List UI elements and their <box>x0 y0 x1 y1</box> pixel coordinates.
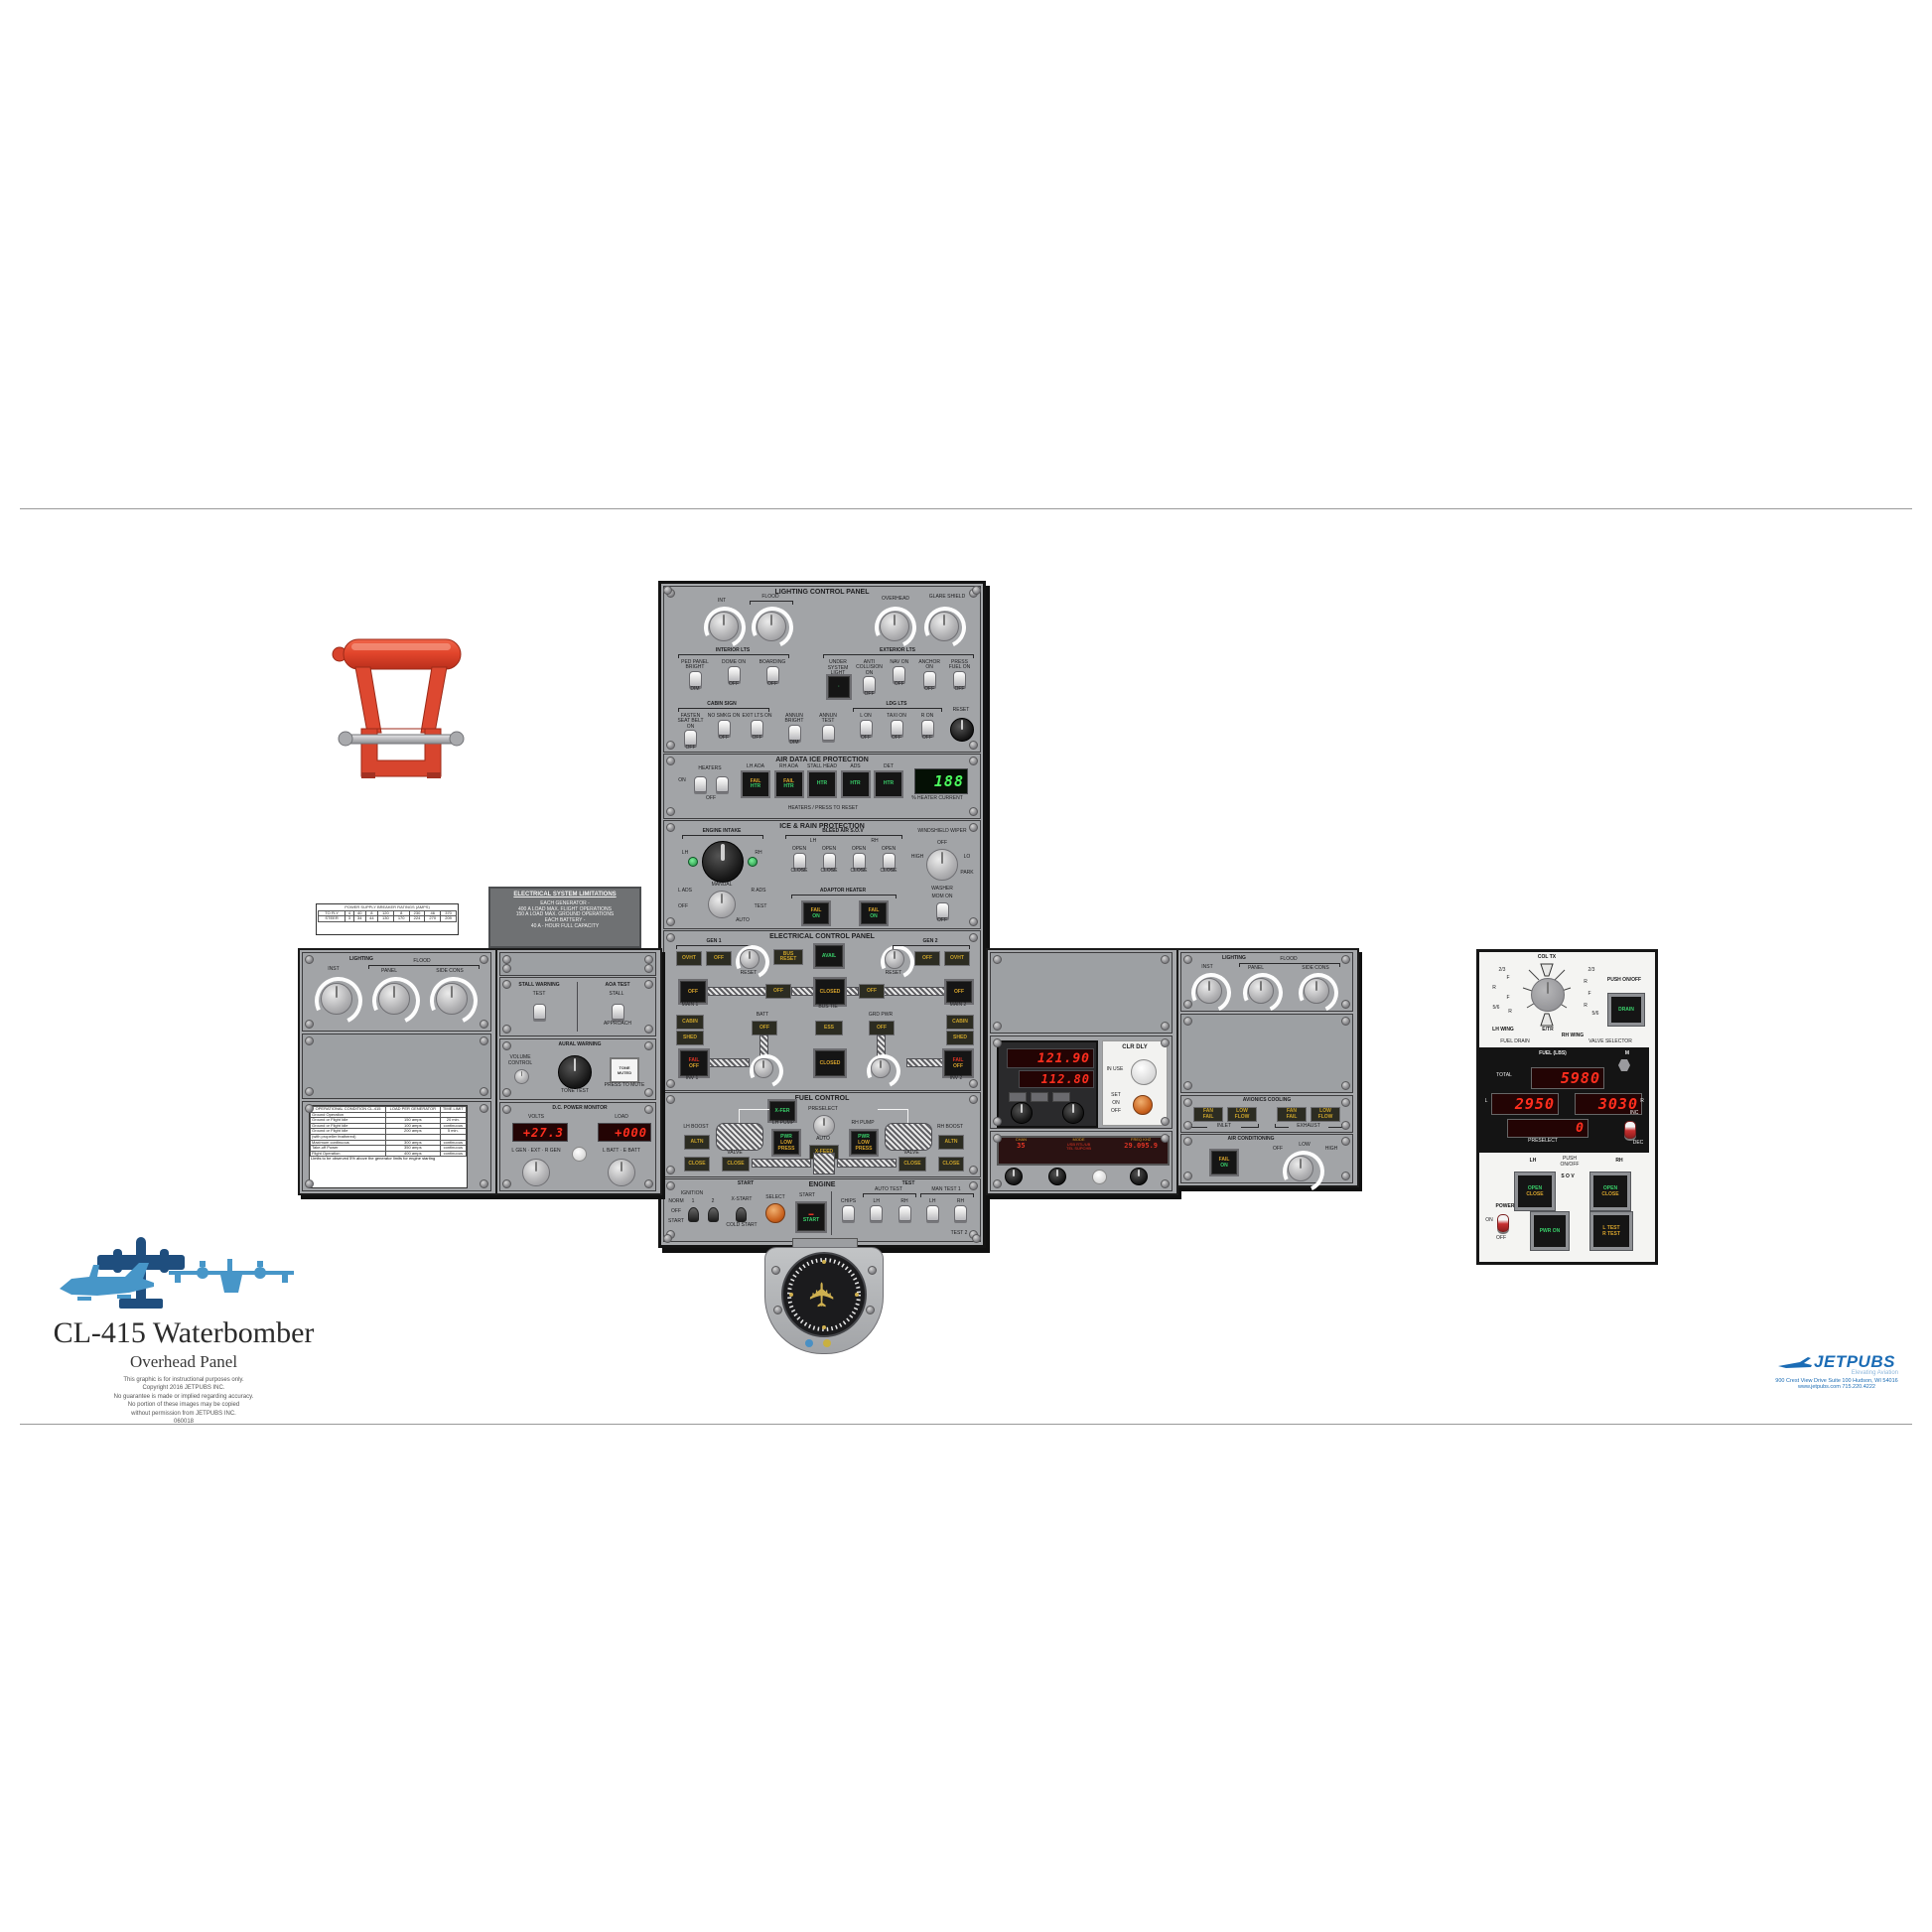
annunciator-face[interactable]: FAIL HTR <box>774 770 804 798</box>
m-label: M <box>1620 1051 1634 1057</box>
engine-test-switch[interactable]: LH <box>919 1199 946 1221</box>
toggle-lever[interactable] <box>923 671 936 687</box>
breaker-table: TO FLY4 408 1208 23046 370 STEER3 3444 1… <box>318 910 457 922</box>
dc-left-selector-labels: L GEN · EXT · R GEN <box>506 1149 566 1155</box>
air-data-ice-protection-panel: AIR DATA ICE PROTECTION HEATERS ON OFF L… <box>663 754 981 819</box>
clr-dly-button[interactable] <box>1131 1059 1157 1085</box>
sel-pos: R <box>1581 1004 1590 1010</box>
sov-letters: S O V <box>1561 1174 1575 1180</box>
rh-altn-annunciator[interactable]: ALTN <box>938 1135 964 1150</box>
grd-pwr-label: GRD PWR <box>863 1013 898 1019</box>
heater-annunciator[interactable]: LH AOA FAIL HTR <box>740 764 771 798</box>
start-button-label: START <box>791 1193 823 1199</box>
cabin-sign-switch[interactable]: NO SMKG ON OFF <box>708 714 741 752</box>
screw <box>1161 1117 1170 1126</box>
screw <box>972 1234 981 1243</box>
sel-pos: 2/3 <box>1583 968 1600 974</box>
left-panel-label: PANEL <box>372 969 406 975</box>
cabin-annunciator[interactable]: CABIN <box>676 1015 704 1030</box>
lh-boost-label: LH BOOST <box>680 1125 712 1131</box>
hf-knob-3[interactable] <box>1130 1168 1148 1185</box>
start-button[interactable]: ▬ START <box>795 1201 827 1233</box>
ldg-light-switch[interactable]: L ON OFF <box>851 714 881 742</box>
screw <box>1341 1172 1350 1180</box>
sel-pos: 5/6 <box>1587 1012 1604 1018</box>
toggle-lever[interactable] <box>926 1205 939 1221</box>
flood-label: FLOOD <box>752 595 789 601</box>
on-label: ON <box>1107 1101 1125 1107</box>
avionics-cooling-title: AVIONICS COOLING <box>1217 1098 1316 1104</box>
sel-pos: F <box>1503 996 1513 1002</box>
fuel-quantity-section: FUEL (LBS) M TOTAL 5980 L 2950 3030 R 0 … <box>1479 1047 1649 1153</box>
gen1-off-annunciator[interactable]: OFF <box>706 951 732 966</box>
rh-label: RH <box>752 851 765 857</box>
glareshield-light-knob[interactable] <box>929 612 959 641</box>
screw <box>480 955 488 964</box>
screw <box>305 1020 314 1029</box>
total-label: TOTAL <box>1489 1073 1519 1079</box>
jetpubs-contact: www.jetpubs.com 715.220.4222 <box>1757 1384 1916 1390</box>
toggle-lever[interactable] <box>766 666 779 682</box>
aircon-annunciator[interactable]: FAIL ON <box>1209 1149 1239 1176</box>
gen1-reset-label: RESET <box>734 971 763 977</box>
screw <box>1183 1017 1192 1026</box>
gen1-ovht-annunciator[interactable]: OVHT <box>676 951 702 966</box>
screw <box>1183 1137 1192 1146</box>
toggle-lever[interactable] <box>883 853 896 869</box>
screw <box>969 1166 978 1174</box>
standby-compass-housing: ✈ <box>764 1247 884 1354</box>
volts-label: VOLTS <box>518 1115 554 1121</box>
aural-warning-panel: AURAL WARNING VOLUME CONTROL TONE TEST T… <box>499 1038 656 1100</box>
volts-display: +27.3 <box>512 1123 568 1142</box>
fuel-drain-selector-section: COL TX 2/3 F R F 5/6 R 2/3 R F R 5/6 E <box>1479 952 1649 1047</box>
toggle-lever[interactable] <box>863 676 876 692</box>
screw <box>969 823 978 832</box>
ads-mode-selector[interactable] <box>708 891 736 918</box>
toggle-lever[interactable] <box>870 1205 883 1221</box>
fuel-control-panel: FUEL CONTROL X-FER LH PUMP PWR LOW PRESS… <box>663 1092 981 1177</box>
left-panel-knob[interactable] <box>378 983 410 1015</box>
screw <box>969 933 978 942</box>
stall-test-label: TEST <box>522 992 556 998</box>
heater-switch-2[interactable] <box>716 776 729 792</box>
toggle-lever[interactable] <box>788 725 801 741</box>
preselect-caption: PRESELECT <box>1513 1139 1573 1145</box>
screw <box>502 964 511 973</box>
screw <box>993 1022 1002 1031</box>
stall-warning-panel: STALL WARNING TEST AOA TEST STALL APPROA… <box>499 977 656 1036</box>
heater-current-label: % HEATER CURRENT <box>906 796 968 802</box>
screw <box>993 1179 1002 1188</box>
screw <box>305 1104 314 1113</box>
trim-line-top <box>20 508 1912 509</box>
avionics-cooling-panel: AVIONICS COOLING FANFAIL LOWFLOW FANFAIL… <box>1180 1095 1353 1133</box>
rh-pump-annunciator[interactable]: PWR LOW PRESS <box>849 1129 879 1157</box>
inlet-label: INLET <box>1207 1124 1241 1130</box>
inv1-label: INV 1 <box>676 1076 708 1082</box>
screw <box>993 1038 1002 1047</box>
clr-dly-plate: CLR DLY IN USE SET ON OFF <box>1102 1040 1168 1126</box>
gen1-reset-knob[interactable] <box>740 949 759 969</box>
screw <box>305 1036 314 1045</box>
main1-label: MAIN 1 <box>670 1003 710 1009</box>
gen2-off-annunciator[interactable]: OFF <box>914 951 940 966</box>
r-label: R <box>1637 1099 1647 1105</box>
int-light-knob[interactable] <box>709 612 739 641</box>
screw <box>1183 1098 1192 1107</box>
power-switch[interactable] <box>1497 1214 1509 1232</box>
interior-light-switch[interactable]: BOARDING OFF <box>754 660 791 693</box>
screw <box>666 933 675 942</box>
right-sidecons-label: SIDE CONS <box>1297 966 1334 972</box>
dc-power-monitor-panel: D.C. POWER MONITOR VOLTS +27.3 LOAD +000… <box>499 1102 656 1191</box>
mode-rads-label: R ADS <box>746 889 771 895</box>
left-blank-panel <box>302 1034 491 1099</box>
screw <box>666 1095 675 1104</box>
screw <box>666 823 675 832</box>
toggle-lever[interactable] <box>684 730 697 746</box>
screw <box>969 1079 978 1088</box>
engine-intake-bracket <box>682 835 763 839</box>
heater-annunciator[interactable]: ADS HTR <box>840 764 872 798</box>
bleed-sov-switch[interactable]: OPEN CLOSE <box>815 847 843 875</box>
aircon-knob[interactable] <box>1288 1156 1313 1181</box>
rh-valve-annunciator[interactable]: CLOSE <box>898 1157 926 1172</box>
engine-test-switch[interactable]: RH <box>892 1199 918 1221</box>
toggle-lever[interactable] <box>842 1205 855 1221</box>
screw <box>969 1181 978 1190</box>
annunciator-face[interactable]: HTR <box>874 770 903 798</box>
engine-test-switch[interactable]: RH <box>947 1199 974 1221</box>
rh-sov-button[interactable]: OPEN CLOSE <box>1590 1173 1630 1210</box>
rh-close-annunciator[interactable]: CLOSE <box>938 1157 964 1172</box>
poster-title: CL-415 Waterbomber <box>40 1316 328 1350</box>
exterior-lts-bracket <box>823 654 974 658</box>
lh-altn-annunciator[interactable]: ALTN <box>684 1135 710 1150</box>
dec-label: DEC <box>1628 1141 1648 1147</box>
lh-valve-annunciator[interactable]: CLOSE <box>722 1157 750 1172</box>
dc-test-button[interactable] <box>572 1147 587 1162</box>
tone-test-label: TONE TEST <box>556 1089 594 1095</box>
shed-annunciator-right[interactable]: SHED <box>946 1031 974 1045</box>
heater-annunciator[interactable]: RH AOA FAIL HTR <box>773 764 805 798</box>
hf-knob-2[interactable] <box>1048 1168 1066 1185</box>
screw <box>502 1025 511 1034</box>
screw <box>480 1020 488 1029</box>
screw <box>993 1117 1002 1126</box>
left-outer-wing-panel: LIGHTING INST FLOOD PANEL SIDE CONS OPER… <box>298 948 497 1195</box>
compass-lamp-blue <box>805 1339 813 1347</box>
washer-switch[interactable] <box>936 902 949 918</box>
ign2-number: 2 <box>708 1199 718 1205</box>
in-use-label: IN USE <box>1105 1067 1125 1073</box>
dc-right-selector[interactable] <box>608 1159 635 1186</box>
bleed-sov-switch[interactable]: OPEN CLOSE <box>845 847 873 875</box>
screw <box>1341 955 1350 964</box>
exterior-light-switch[interactable]: PRESS FUEL ON OFF <box>945 660 974 698</box>
engine-intake-label: ENGINE INTAKE <box>688 829 756 835</box>
aoa-test-switch[interactable] <box>612 1004 624 1020</box>
interior-light-switch[interactable]: PED PANEL BRIGHT DIM <box>676 660 714 693</box>
xstart-label: X-START <box>726 1197 758 1203</box>
left-sidecons-label: SIDE CONS <box>430 969 470 975</box>
inv2-annunciator[interactable]: FAIL OFF <box>942 1048 974 1078</box>
grd-off-annunciator[interactable]: OFF <box>869 1021 895 1035</box>
clr-dly-title: CLR DLY <box>1103 1044 1167 1051</box>
wiper-park-label: PARK <box>956 871 978 877</box>
inlet-annunciator-2[interactable]: LOWFLOW <box>1227 1107 1257 1122</box>
screw <box>666 1079 675 1088</box>
valve-selector-label: VALVE SELECTOR <box>1581 1039 1640 1045</box>
electrical-limitations-plate: ELECTRICAL SYSTEM LIMITATIONS EACH GENER… <box>488 887 641 948</box>
gen2-ovht-annunciator[interactable]: OVHT <box>944 951 970 966</box>
wiper-selector[interactable] <box>926 849 958 881</box>
ignition-1-switch[interactable] <box>688 1207 699 1222</box>
adaptor-heater-rh-annunciator[interactable]: FAIL ON <box>859 900 889 926</box>
gen1-label: GEN 1 <box>694 939 734 945</box>
start-select-knob[interactable] <box>765 1203 785 1223</box>
interior-lts-bracket <box>678 654 789 658</box>
exterior-light-switch[interactable]: NAV ON OFF <box>885 660 913 698</box>
man-test-bracket <box>920 1193 974 1197</box>
xstart-switch[interactable] <box>736 1207 747 1222</box>
inv1-annunciator[interactable]: FAIL OFF <box>678 1048 710 1078</box>
wiper-off-label: OFF <box>930 841 954 847</box>
avail-annunciator[interactable]: AVAIL <box>813 943 845 969</box>
toggle-lever[interactable] <box>893 666 905 682</box>
fuel-lbs-label: FUEL (LBS) <box>1523 1051 1583 1057</box>
heater-switch-1[interactable] <box>694 776 707 792</box>
toggle-lever[interactable] <box>853 853 866 869</box>
screw <box>1161 1022 1170 1031</box>
overhead-light-knob[interactable] <box>880 612 909 641</box>
auto-test-label: AUTO TEST <box>865 1187 912 1193</box>
cabin-sign-switch[interactable]: EXIT LTS ON OFF <box>741 714 773 752</box>
radio-tune-knob[interactable] <box>1011 1102 1033 1124</box>
right-sidecons-knob[interactable] <box>1304 978 1329 1004</box>
radio-button-2[interactable] <box>1031 1092 1048 1102</box>
screw <box>969 741 978 750</box>
hf-button[interactable] <box>1092 1170 1107 1184</box>
screw <box>972 586 981 595</box>
power-off-label: OFF <box>1491 1236 1511 1242</box>
annunciator-face[interactable]: HTR <box>807 770 837 798</box>
left-sidecons-knob[interactable] <box>436 983 468 1015</box>
cold-start-label: COLD START <box>724 1223 759 1229</box>
lh-intake-light <box>688 857 698 867</box>
screw <box>1161 1134 1170 1143</box>
radio-panel: 121.90 112.80 CLR DLY IN USE SET ON OFF <box>990 1035 1173 1129</box>
tone-test-selector[interactable] <box>558 1055 592 1089</box>
rh-intake-light <box>748 857 758 867</box>
int-knob-label: INT <box>704 599 740 605</box>
screw <box>644 955 653 964</box>
toggle-lever[interactable] <box>891 720 903 736</box>
left-flood-label: FLOOD <box>404 959 440 965</box>
interior-light-switch[interactable]: DOME ON OFF <box>715 660 753 693</box>
screw <box>1161 1038 1170 1047</box>
reset-button[interactable] <box>950 718 974 742</box>
screw <box>969 807 978 816</box>
bus1-off-annunciator[interactable]: OFF <box>765 984 791 999</box>
bleed-rh-label: RH <box>855 839 895 845</box>
svg-text:✈: ✈ <box>804 1281 842 1310</box>
screw <box>1183 955 1192 964</box>
ign-off-label: OFF <box>666 1209 686 1215</box>
bleed-sov-switch[interactable]: OPEN CLOSE <box>785 847 813 875</box>
exterior-light-switch[interactable]: ANTI COLLISION ON OFF <box>855 660 884 698</box>
batt-switch-knob[interactable] <box>754 1058 773 1078</box>
annunciator-face[interactable]: HTR <box>841 770 871 798</box>
screw <box>1341 1017 1350 1026</box>
ignition-label: IGNITION <box>674 1191 710 1197</box>
grd-pwr-knob[interactable] <box>871 1058 891 1078</box>
right-inst-knob[interactable] <box>1196 978 1222 1004</box>
under-system-light-annunciator[interactable]: · <box>826 674 852 700</box>
toggle-lever[interactable] <box>751 720 763 736</box>
hf-freq-value: 29.095.9 <box>1114 1143 1168 1151</box>
lh-pump-annunciator[interactable]: PWR LOW PRESS <box>771 1129 801 1157</box>
ign1-number: 1 <box>688 1199 698 1205</box>
heater-annunciator[interactable]: STALL HEAD HTR <box>806 764 838 798</box>
exterior-lts-label: EXTERIOR LTS <box>863 648 932 654</box>
toggle-lever[interactable] <box>860 720 873 736</box>
toggle-lever[interactable] <box>718 720 731 736</box>
ice-rain-protection-panel: ICE & RAIN PROTECTION ENGINE INTAKE LH R… <box>663 820 981 929</box>
screw <box>1341 1081 1350 1090</box>
exhaust-annunciator-1[interactable]: FANFAIL <box>1277 1107 1307 1122</box>
adaptor-heater-lh-annunciator[interactable]: FAIL ON <box>801 900 831 926</box>
annun-switch[interactable]: ANNUN BRIGHT DIM <box>779 714 809 747</box>
main2-label: MAIN 2 <box>938 1003 978 1009</box>
fuel-control-title: FUEL CONTROL <box>664 1095 980 1103</box>
left-filler-strip <box>499 952 656 976</box>
screw <box>1183 1121 1192 1130</box>
mode-auto-label: AUTO <box>730 918 756 924</box>
gen2-reset-knob[interactable] <box>885 949 904 969</box>
drain-push-label: PUSH ON/OFF <box>1604 978 1644 984</box>
volume-knob[interactable] <box>514 1069 529 1084</box>
heater-annunciator[interactable]: DET HTR <box>873 764 904 798</box>
ignition-2-switch[interactable] <box>708 1207 719 1222</box>
sel-pos: F <box>1585 992 1594 998</box>
wiper-label: WINDSHIELD WIPER <box>910 829 974 835</box>
screw <box>666 757 675 765</box>
aircon-low-label: LOW <box>1293 1143 1316 1149</box>
engine-test-switch[interactable]: LH <box>863 1199 890 1221</box>
water-drop-handle[interactable] <box>328 633 475 784</box>
flood-bracket <box>750 601 793 605</box>
clr-dly-knob[interactable] <box>1133 1095 1153 1115</box>
toggle-lever[interactable] <box>898 1205 911 1221</box>
ess-annunciator[interactable]: ESS <box>815 1021 843 1035</box>
rh-pump-label: RH PUMP <box>849 1121 877 1127</box>
stall-warning-switch[interactable] <box>533 1004 546 1020</box>
cabin-sign-bracket <box>678 708 769 712</box>
toggle-lever[interactable] <box>728 666 741 682</box>
screw <box>663 1234 672 1243</box>
screw <box>644 1041 653 1050</box>
toggle-lever[interactable] <box>954 1205 967 1221</box>
left-inst-knob[interactable] <box>321 983 352 1015</box>
inv-tie-annunciator[interactable]: CLOSED <box>813 1048 847 1078</box>
screw <box>969 1095 978 1104</box>
radio-volume-knob[interactable] <box>1062 1102 1084 1124</box>
inlet-annunciator-1[interactable]: FANFAIL <box>1193 1107 1223 1122</box>
ldg-light-switch[interactable]: R ON OFF <box>912 714 942 742</box>
annunciator-face[interactable]: FAIL HTR <box>741 770 770 798</box>
toggle-lever[interactable] <box>823 853 836 869</box>
hf-knob-1[interactable] <box>1005 1168 1023 1185</box>
toggle-lever[interactable] <box>921 720 934 736</box>
radio-button-3[interactable] <box>1052 1092 1070 1102</box>
fuel-preselect-knob[interactable] <box>813 1115 835 1137</box>
test-button[interactable]: L TEST R TEST <box>1590 1212 1632 1250</box>
ldg-lts-label: LDG LTS <box>875 702 918 708</box>
fuel-drain-label: FUEL DRAIN <box>1493 1039 1537 1045</box>
cabin-annunciator-right[interactable]: CABIN <box>946 1015 974 1030</box>
limitations-title: ELECTRICAL SYSTEM LIMITATIONS <box>490 892 639 898</box>
ops-table-panel: OPERATIONAL CONDITION CL-415 LOAD PER GE… <box>302 1101 491 1191</box>
annun-switch[interactable]: ANNUN TEST <box>813 714 843 747</box>
shed-annunciator-left[interactable]: SHED <box>676 1031 704 1045</box>
jetpubs-plane-icon <box>1778 1355 1812 1369</box>
engine-test-switch[interactable]: CHIPS <box>835 1199 862 1221</box>
toggle-lever[interactable] <box>822 725 835 741</box>
air-conditioning-title: AIR CONDITIONING <box>1201 1137 1301 1143</box>
toggle-lever[interactable] <box>689 671 702 687</box>
preselect-inc-dec-switch[interactable] <box>1624 1121 1636 1139</box>
exhaust-annunciator-2[interactable]: LOWFLOW <box>1311 1107 1340 1122</box>
bus-reset-annunciator[interactable]: BUS RESET <box>773 949 803 965</box>
bus-tie-annunciator[interactable]: CLOSED <box>813 977 847 1007</box>
pwr-on-button[interactable]: PWR ON <box>1531 1212 1569 1250</box>
lh-close-annunciator[interactable]: CLOSE <box>684 1157 710 1172</box>
bus2-off-annunciator[interactable]: OFF <box>859 984 885 999</box>
ldg-light-switch[interactable]: TAXI ON OFF <box>882 714 911 742</box>
right-panel-knob[interactable] <box>1248 978 1274 1004</box>
screw <box>1183 1000 1192 1009</box>
screw <box>666 1181 675 1190</box>
toggle-lever[interactable] <box>793 853 806 869</box>
electrical-control-panel: ELECTRICAL CONTROL PANEL GEN 1 OVHT OFF … <box>663 930 981 1091</box>
inst-label: INST <box>319 967 348 973</box>
heaters-label: HEATERS <box>688 766 732 772</box>
radio-button-1[interactable] <box>1009 1092 1027 1102</box>
screw <box>1341 1121 1350 1130</box>
screw <box>1341 1137 1350 1146</box>
screw <box>666 1166 675 1174</box>
batt-off-annunciator[interactable]: OFF <box>752 1021 777 1035</box>
left-lighting-title: LIGHTING <box>335 957 388 963</box>
drain-button[interactable]: DRAIN <box>1608 994 1644 1026</box>
dc-left-selector[interactable] <box>522 1159 550 1186</box>
toggle-lever[interactable] <box>953 671 966 687</box>
tone-mute-button[interactable]: TONE MUTED <box>610 1057 639 1083</box>
flood-light-knob[interactable] <box>757 612 786 641</box>
wiper-high-label: HIGH <box>906 855 928 861</box>
aoa-approach-label: APPROACH <box>598 1022 637 1028</box>
aircon-high-label: HIGH <box>1318 1147 1344 1153</box>
exterior-light-switch[interactable]: ANCHOR ON OFF <box>915 660 944 698</box>
table-row: STEER3 3444 130170 224270 209 <box>319 916 457 922</box>
bleed-sov-switch[interactable]: OPEN CLOSE <box>875 847 902 875</box>
fuel-drain-valve-selector[interactable] <box>1531 978 1565 1012</box>
cabin-sign-switch[interactable]: FASTEN SEAT BELT ON OFF <box>674 714 707 752</box>
screw <box>1183 1172 1192 1180</box>
sel-pos: 5/6 <box>1487 1006 1505 1012</box>
